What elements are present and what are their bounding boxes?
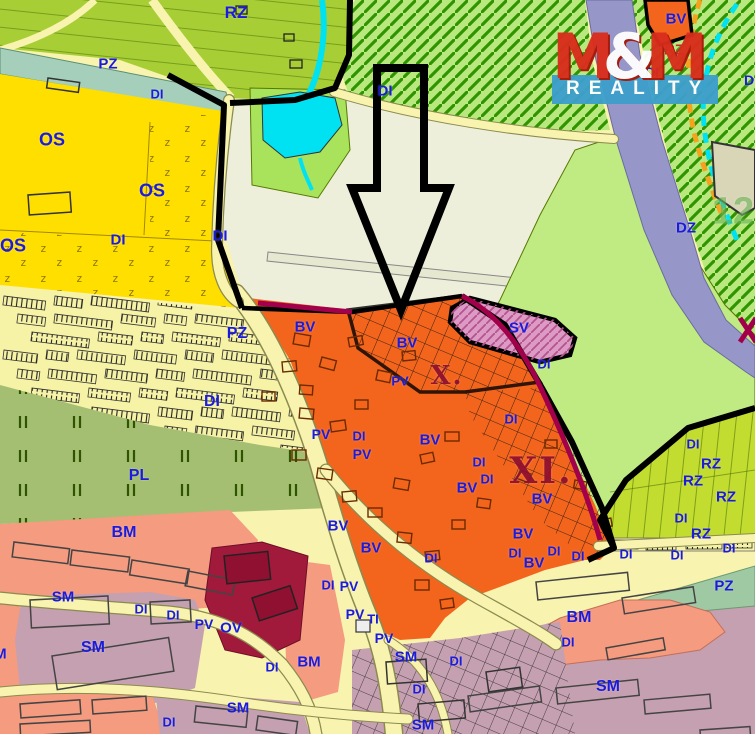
zoning-map-screenshot: z z (0, 0, 755, 734)
logo-tagline: REALITY (552, 75, 718, 104)
ti-utility-building (356, 620, 370, 632)
zone-os (0, 74, 240, 308)
mm-reality-logo: M&M REALITY (552, 28, 718, 104)
zoning-map-canvas: z z (0, 0, 755, 734)
